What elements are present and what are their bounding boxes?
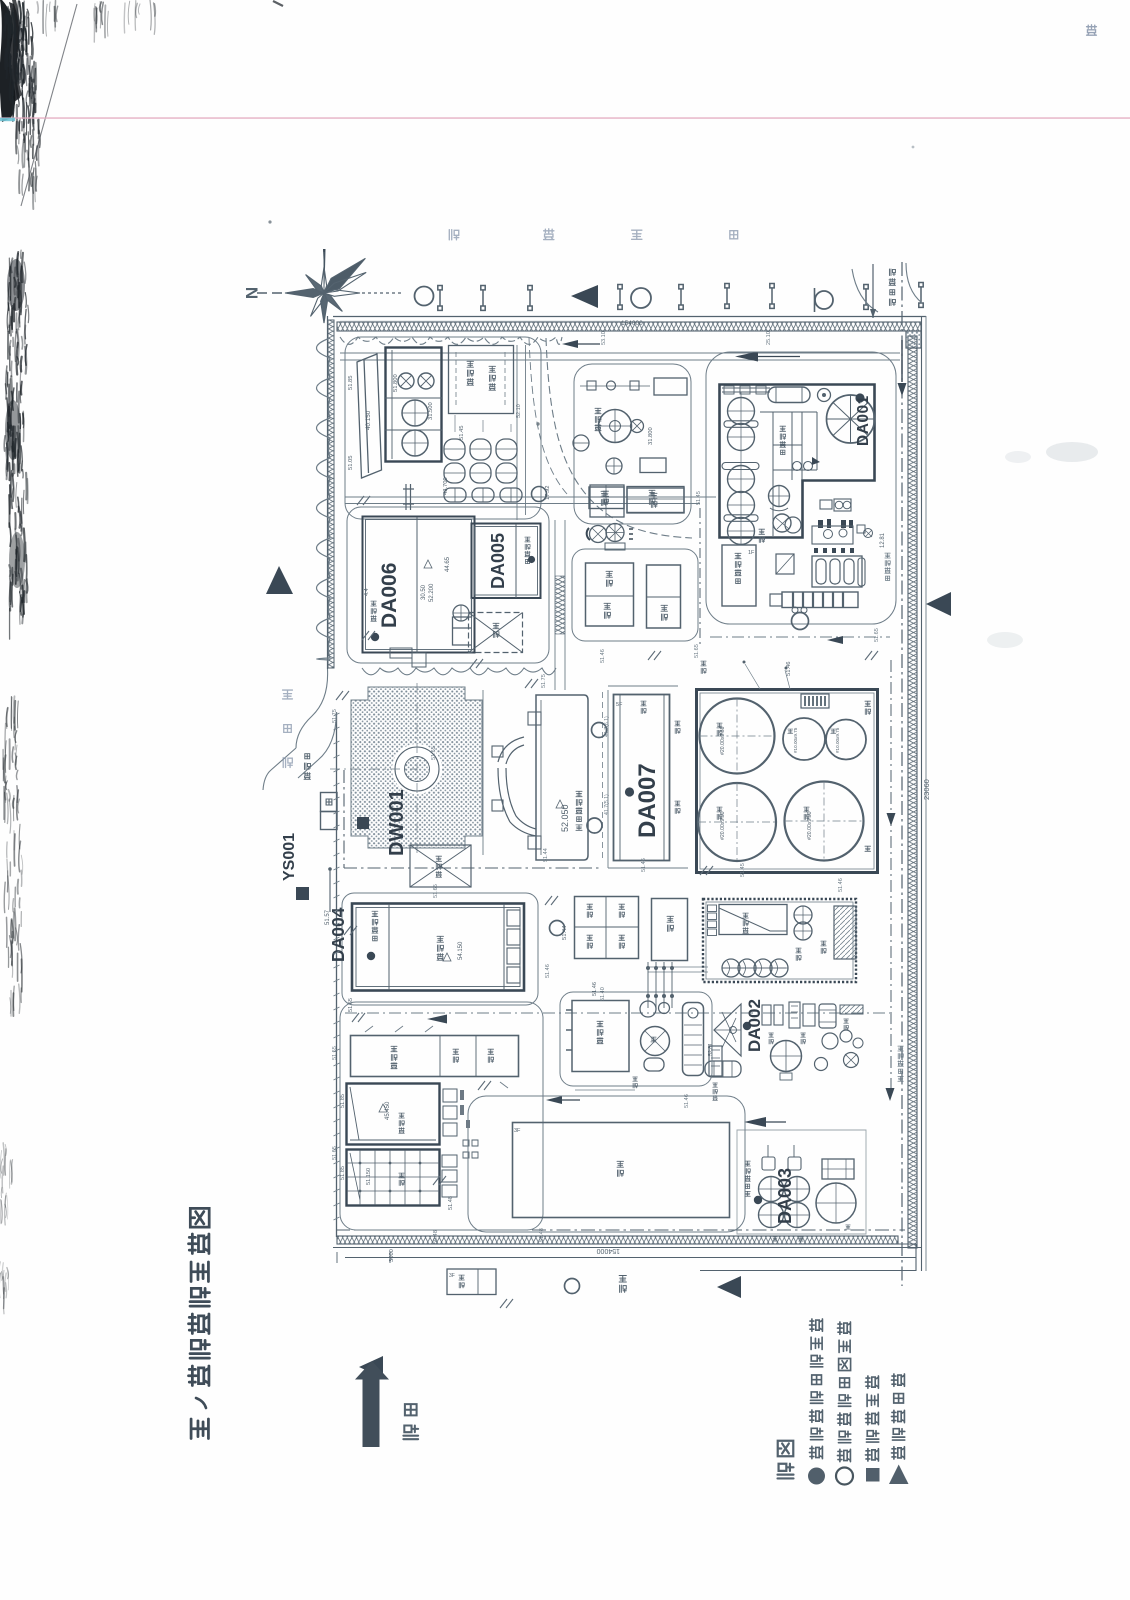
svg-text:51.46: 51.46 <box>838 878 844 892</box>
svg-text:DA003: DA003 <box>775 1168 795 1224</box>
svg-text:51.85: 51.85 <box>348 375 354 390</box>
svg-text:51.75: 51.75 <box>332 709 338 723</box>
svg-text:51.45: 51.45 <box>696 491 702 505</box>
svg-text:51.55: 51.55 <box>332 1046 338 1060</box>
svg-text:51.44: 51.44 <box>543 848 549 862</box>
svg-text:51.48: 51.48 <box>448 1196 454 1210</box>
svg-text:#10.00x9.75: #10.00x9.75 <box>835 727 840 753</box>
svg-text:DA007: DA007 <box>634 763 661 838</box>
svg-text:31.800: 31.800 <box>648 427 654 445</box>
svg-text:51.65: 51.65 <box>433 884 439 898</box>
svg-text:DA006: DA006 <box>378 563 401 628</box>
svg-text:23060: 23060 <box>922 779 931 800</box>
svg-text:51.57: 51.57 <box>325 909 331 925</box>
svg-text:50.48: 50.48 <box>433 1230 439 1244</box>
svg-text:DA004: DA004 <box>328 907 348 962</box>
svg-text:52.050: 52.050 <box>560 804 570 832</box>
svg-text:52.10: 52.10 <box>516 404 522 418</box>
svg-text:1F: 1F <box>748 550 755 556</box>
svg-text:5F: 5F <box>616 702 623 708</box>
svg-text:51.45: 51.45 <box>740 863 746 877</box>
svg-text:51.150: 51.150 <box>366 1168 372 1185</box>
svg-text:41.7(5.1): 41.7(5.1) <box>604 794 610 815</box>
svg-text:51.05: 51.05 <box>348 455 354 470</box>
svg-text:4.4: 4.4 <box>364 588 370 596</box>
svg-text:54.150: 54.150 <box>458 941 464 960</box>
svg-text:30.50: 30.50 <box>421 584 427 600</box>
svg-text:51.40: 51.40 <box>600 987 606 1001</box>
svg-text:3F: 3F <box>449 1273 455 1279</box>
svg-text:51.46: 51.46 <box>641 858 647 872</box>
svg-text:52.200: 52.200 <box>429 583 435 602</box>
svg-text:154000: 154000 <box>621 320 643 327</box>
svg-text:51.46: 51.46 <box>592 982 598 996</box>
svg-text:51.45: 51.45 <box>459 425 465 440</box>
svg-text:51.65: 51.65 <box>694 644 700 658</box>
svg-text:25.10: 25.10 <box>766 331 772 345</box>
svg-text:51.85: 51.85 <box>340 1094 346 1108</box>
svg-text:31.500: 31.500 <box>428 402 434 420</box>
svg-text:51.75: 51.75 <box>541 674 547 688</box>
svg-text:43.700: 43.700 <box>443 477 449 495</box>
svg-text:3F: 3F <box>514 1128 521 1134</box>
svg-text:51.46: 51.46 <box>600 649 606 663</box>
svg-text:3000: 3000 <box>389 1249 395 1262</box>
svg-text:51.65: 51.65 <box>431 746 437 760</box>
svg-text:YS001: YS001 <box>281 833 298 881</box>
svg-text:51.800: 51.800 <box>393 374 399 392</box>
svg-text:51.46: 51.46 <box>684 1094 690 1108</box>
svg-text:#20.00x9.50: #20.00x9.50 <box>720 811 726 840</box>
svg-text:#10.00x9.75: #10.00x9.75 <box>793 727 798 753</box>
svg-text:41.7(6.1): 41.7(6.1) <box>604 716 610 737</box>
svg-text:53.10: 53.10 <box>601 331 607 345</box>
svg-text:17.92: 17.92 <box>545 485 551 500</box>
svg-text:51.65: 51.65 <box>874 628 880 642</box>
svg-text:#20.00x9.50: #20.00x9.50 <box>807 811 813 840</box>
svg-text:DW001: DW001 <box>386 789 408 856</box>
svg-text:44.65: 44.65 <box>445 556 451 572</box>
svg-text:40.150: 40.150 <box>365 410 372 430</box>
svg-text:51.44: 51.44 <box>562 925 568 940</box>
svg-text:51.85: 51.85 <box>340 1166 346 1180</box>
svg-text:DA005: DA005 <box>488 533 508 589</box>
svg-text:12.81: 12.81 <box>880 532 886 548</box>
svg-text:51.65: 51.65 <box>348 998 354 1012</box>
svg-text:51.48: 51.48 <box>539 1228 545 1242</box>
svg-text:51.46: 51.46 <box>545 964 551 978</box>
svg-text:154000: 154000 <box>597 1247 620 1254</box>
svg-text:N: N <box>242 287 261 299</box>
svg-text:DA001: DA001 <box>855 395 872 446</box>
svg-text:DA002: DA002 <box>745 999 764 1052</box>
